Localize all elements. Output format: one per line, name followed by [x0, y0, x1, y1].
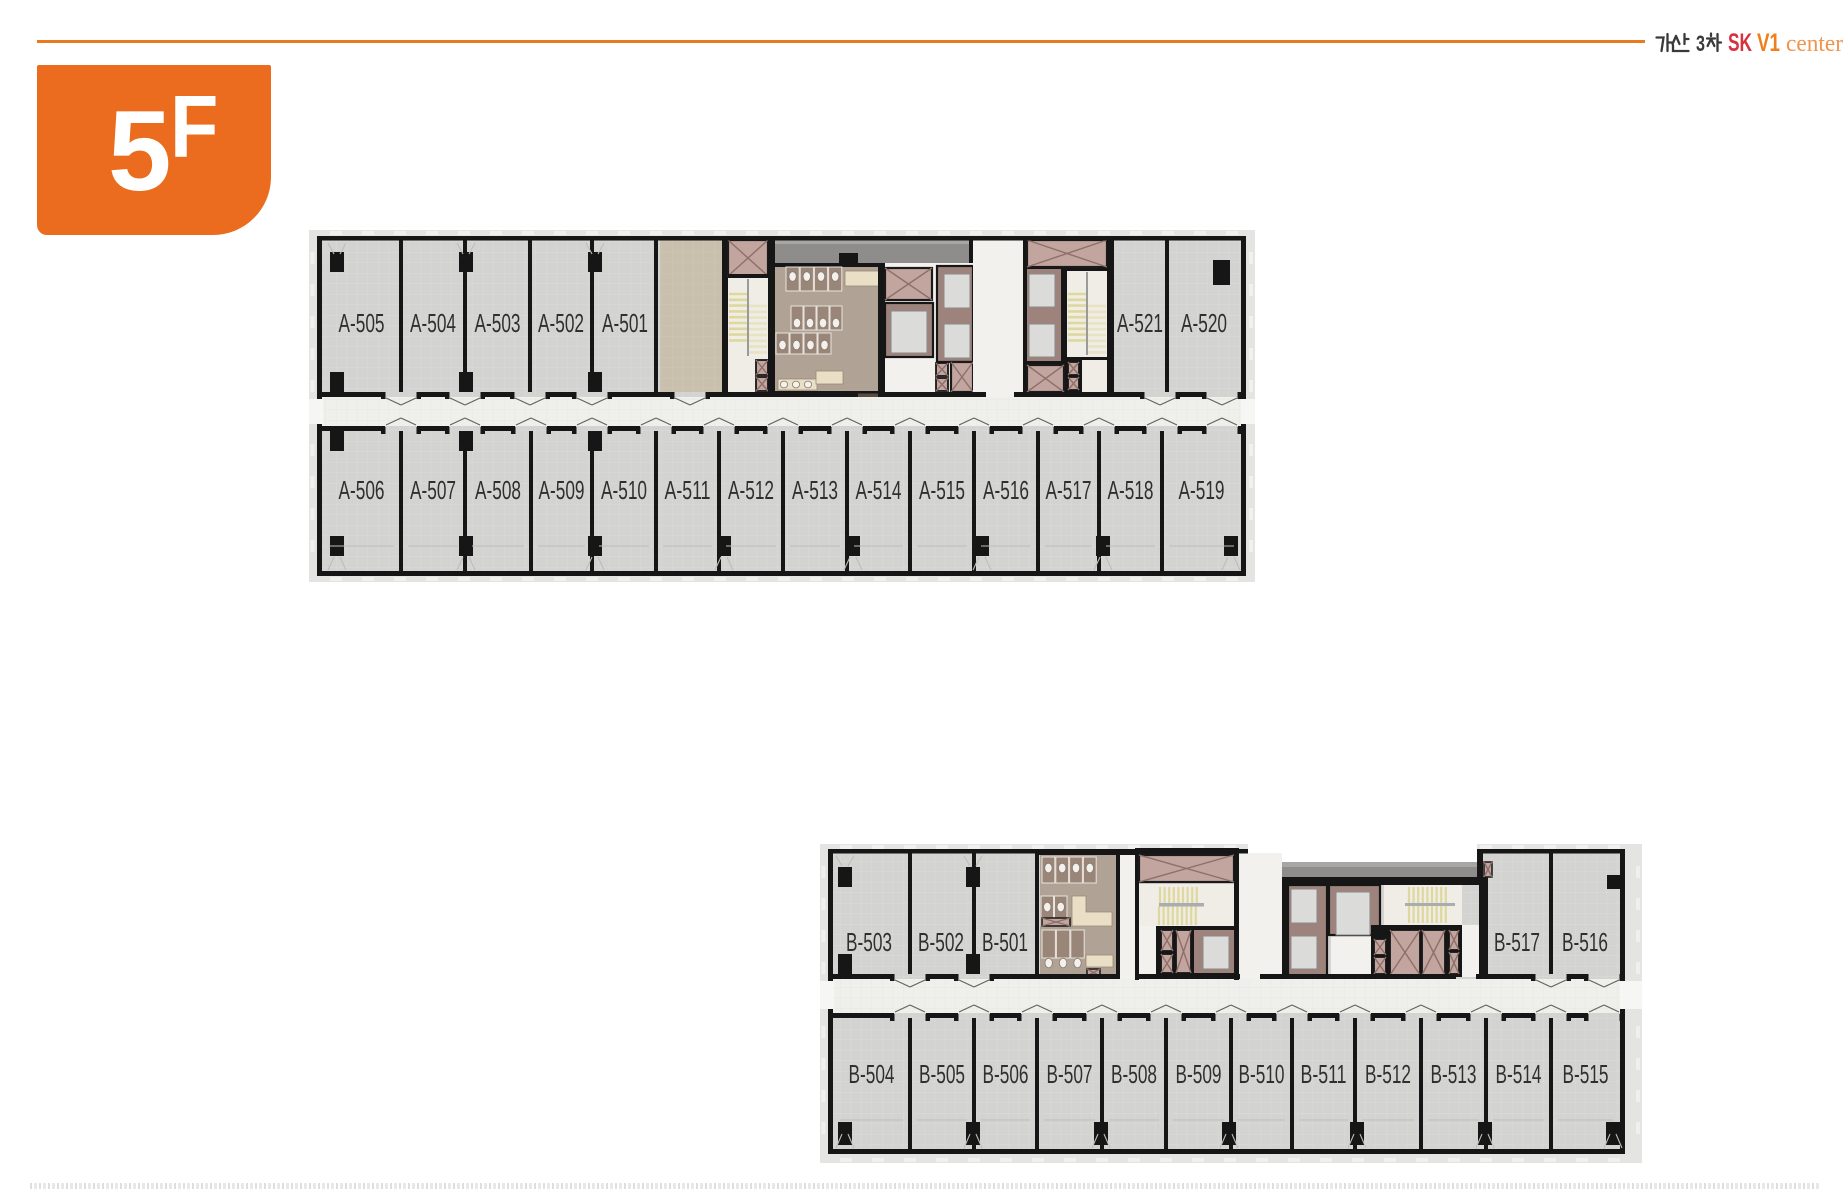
svg-text:A-508: A-508: [475, 475, 521, 505]
svg-text:A-511: A-511: [665, 475, 711, 505]
svg-text:A-510: A-510: [601, 475, 647, 505]
svg-text:B-515: B-515: [1563, 1059, 1609, 1089]
svg-text:B-501: B-501: [982, 927, 1028, 957]
svg-text:B-517: B-517: [1494, 927, 1540, 957]
svg-text:A-521: A-521: [1117, 308, 1163, 338]
svg-text:A-505: A-505: [339, 308, 385, 338]
svg-text:A-503: A-503: [475, 308, 521, 338]
svg-text:A-513: A-513: [792, 475, 838, 505]
svg-text:A-501: A-501: [602, 308, 648, 338]
svg-text:A-504: A-504: [410, 308, 456, 338]
svg-text:B-513: B-513: [1431, 1059, 1477, 1089]
svg-text:A-502: A-502: [538, 308, 584, 338]
svg-text:A-509: A-509: [539, 475, 585, 505]
svg-text:B-504: B-504: [849, 1059, 895, 1089]
svg-text:B-510: B-510: [1239, 1059, 1285, 1089]
svg-text:B-503: B-503: [846, 927, 892, 957]
svg-text:B-507: B-507: [1047, 1059, 1093, 1089]
svg-text:A-519: A-519: [1179, 475, 1225, 505]
svg-text:B-502: B-502: [918, 927, 964, 957]
svg-text:A-517: A-517: [1046, 475, 1092, 505]
svg-text:A-512: A-512: [728, 475, 774, 505]
svg-text:B-508: B-508: [1111, 1059, 1157, 1089]
svg-text:B-509: B-509: [1176, 1059, 1222, 1089]
svg-text:A-514: A-514: [856, 475, 902, 505]
svg-text:A-520: A-520: [1181, 308, 1227, 338]
svg-text:B-512: B-512: [1365, 1059, 1411, 1089]
svg-text:B-511: B-511: [1301, 1059, 1347, 1089]
svg-text:A-507: A-507: [410, 475, 456, 505]
svg-text:B-505: B-505: [919, 1059, 965, 1089]
svg-text:A-506: A-506: [339, 475, 385, 505]
svg-text:B-506: B-506: [983, 1059, 1029, 1089]
svg-text:A-515: A-515: [919, 475, 965, 505]
svg-text:B-516: B-516: [1562, 927, 1608, 957]
svg-text:A-516: A-516: [983, 475, 1029, 505]
svg-text:B-514: B-514: [1496, 1059, 1542, 1089]
svg-text:A-518: A-518: [1108, 475, 1154, 505]
